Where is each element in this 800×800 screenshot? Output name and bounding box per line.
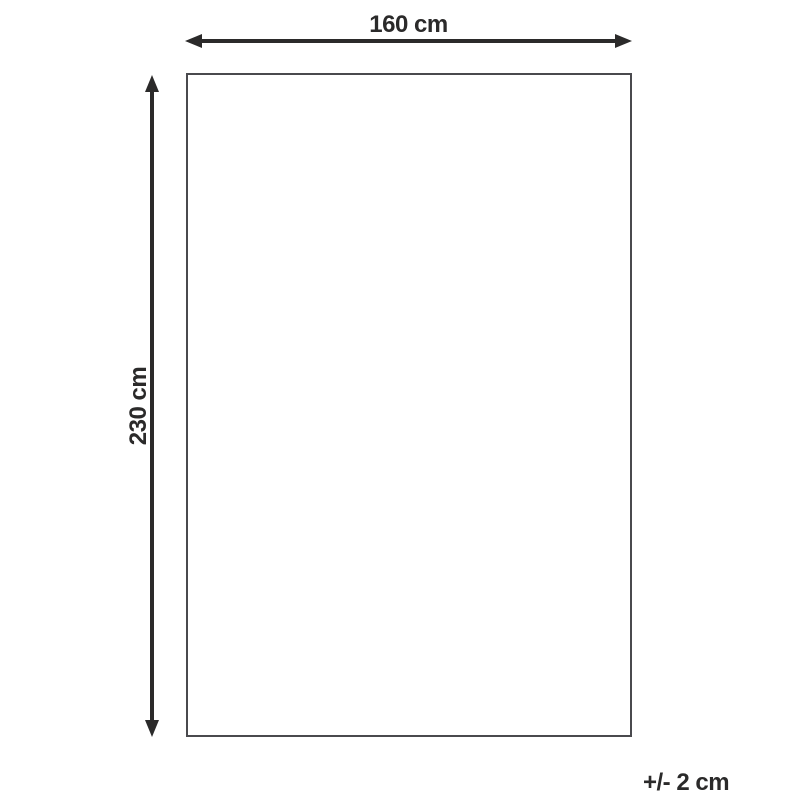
width-label: 160 cm [185, 12, 632, 38]
product-outline-rect [186, 73, 632, 737]
tolerance-label: +/- 2 cm [643, 770, 729, 796]
dimension-diagram-canvas: 160 cm 230 cm +/- 2 cm [0, 0, 800, 800]
width-arrow-line [198, 39, 619, 43]
height-label: 230 cm [126, 367, 152, 445]
arrow-down-icon [145, 720, 159, 737]
